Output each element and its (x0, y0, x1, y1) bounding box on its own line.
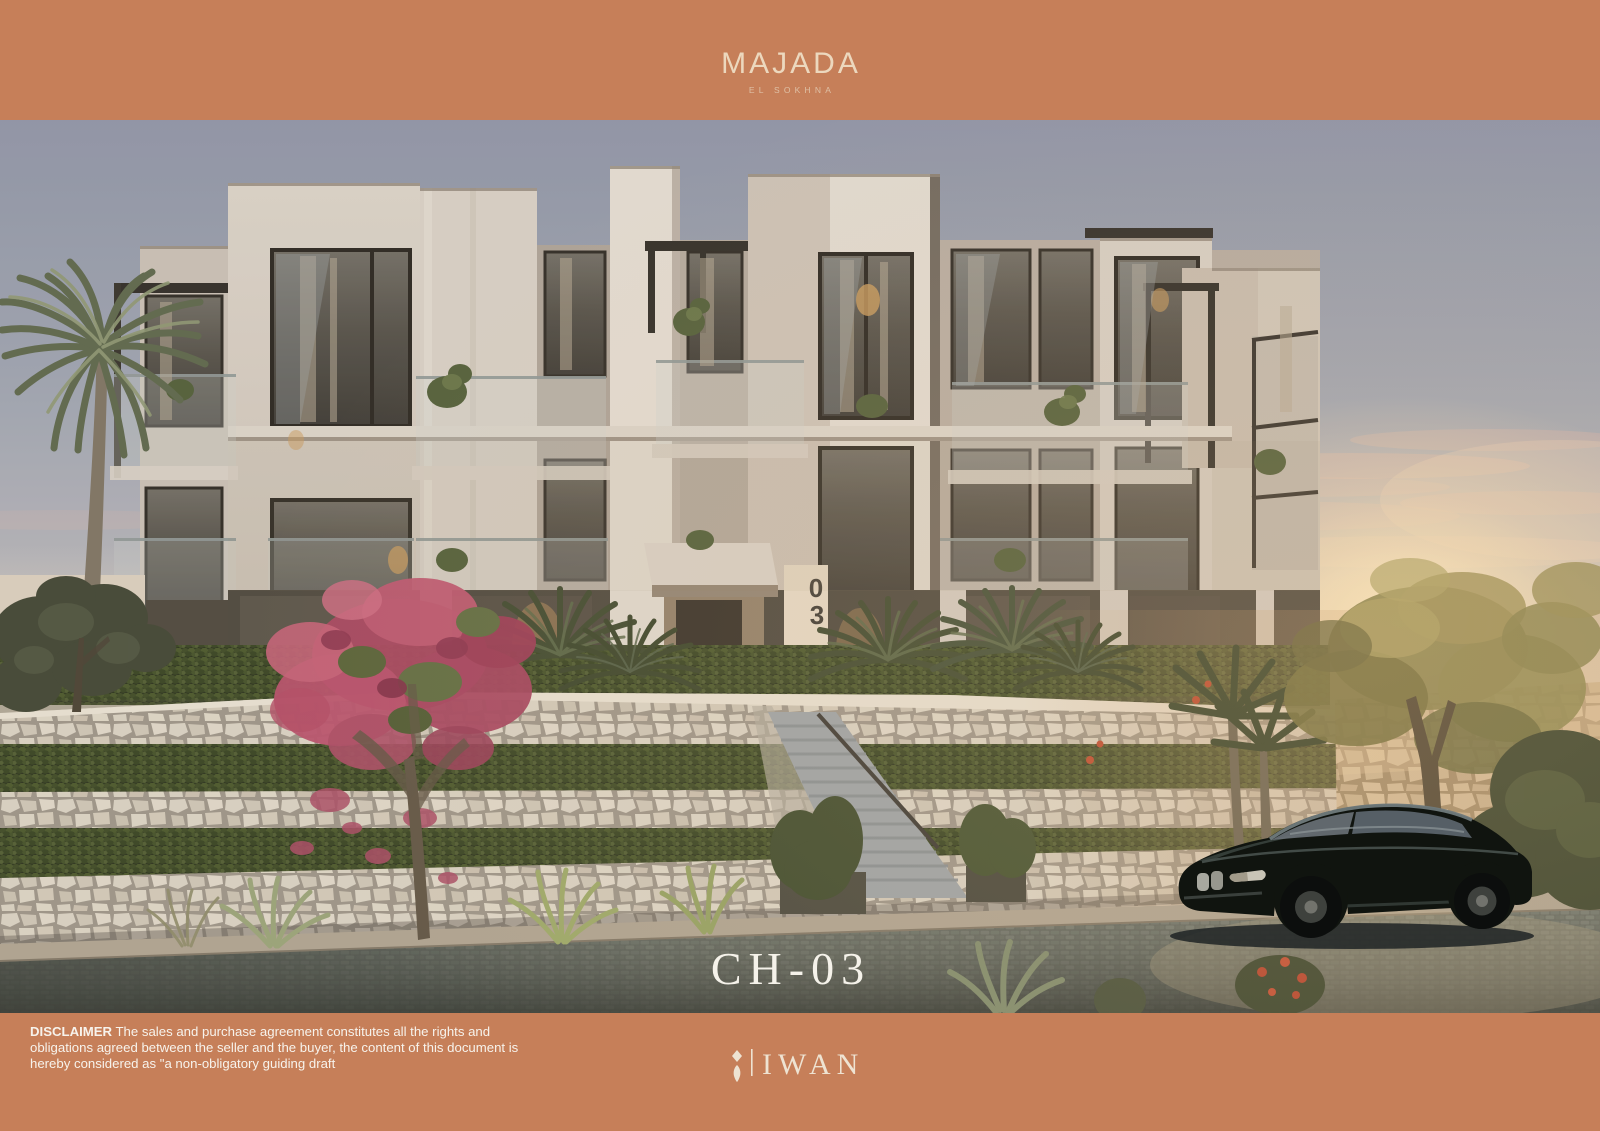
svg-text:hereby considered as "a non-ob: hereby considered as "a non-obligatory g… (30, 1056, 336, 1071)
svg-text:CH-03: CH-03 (711, 943, 871, 994)
svg-text:obligations agreed between the: obligations agreed between the seller an… (30, 1040, 519, 1055)
svg-text:IWAN: IWAN (762, 1048, 864, 1081)
svg-text:DISCLAIMER The sales and purch: DISCLAIMER The sales and purchase agreem… (30, 1024, 490, 1039)
svg-text:MAJADA: MAJADA (721, 47, 861, 80)
svg-text:EL SOKHNA: EL SOKHNA (749, 85, 835, 95)
